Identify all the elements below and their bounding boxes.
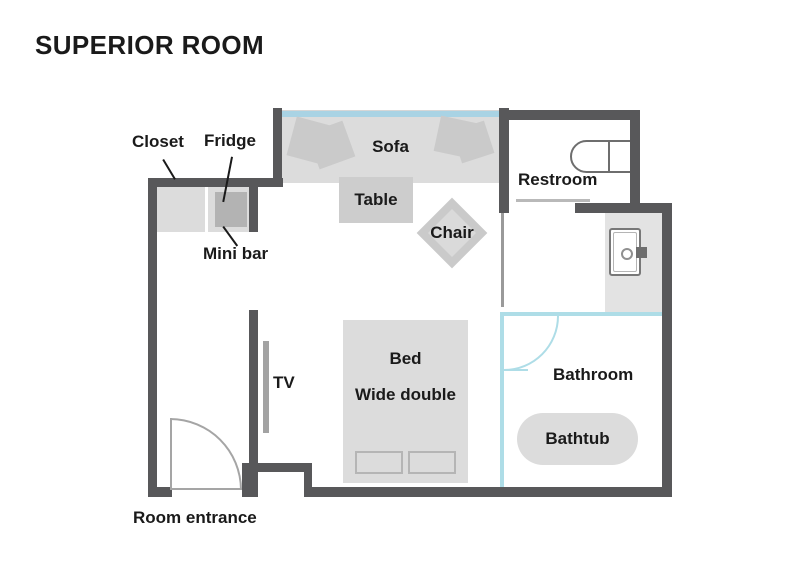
fridge	[215, 192, 247, 227]
tv-label: TV	[273, 374, 295, 393]
bed-type-label: Wide double	[343, 386, 468, 405]
toilet-top-view-icon	[570, 140, 632, 173]
sink-drain-icon	[621, 248, 633, 260]
wall-bottom-left	[148, 487, 172, 497]
bathroom-door-panel	[500, 369, 528, 371]
wall-notch-top	[256, 463, 307, 472]
faucet-icon	[636, 247, 647, 258]
bathroom-label: Bathroom	[553, 366, 633, 385]
table: Table	[339, 177, 413, 223]
pillow-outline-icon	[408, 451, 456, 474]
bed-label: Bed	[343, 350, 468, 369]
bathroom-door-swing-arc-icon	[504, 316, 559, 371]
wall-restroom-top	[499, 110, 640, 120]
wall-bottom	[310, 487, 672, 497]
closet	[157, 187, 205, 232]
corridor-partition-line	[501, 213, 504, 307]
wall-restroom-left	[499, 108, 509, 213]
chair-label: Chair	[412, 224, 492, 243]
wall-sofa-left	[273, 108, 282, 187]
table-label: Table	[354, 191, 397, 210]
wall-tv-bar-icon	[263, 341, 269, 433]
pillow-outline-icon	[355, 451, 403, 474]
page-title: SUPERIOR ROOM	[35, 30, 264, 61]
restroom-door-line	[516, 199, 590, 202]
wall-minibar-right	[249, 178, 258, 232]
wall-corridor-bottom	[575, 203, 672, 213]
toilet-tank-divider	[608, 142, 610, 171]
wall-right	[662, 203, 672, 497]
restroom-label: Restroom	[518, 171, 597, 190]
closet-label: Closet	[132, 133, 184, 152]
sofa-label: Sofa	[282, 138, 499, 157]
mini-bar-label: Mini bar	[203, 245, 268, 264]
wall-closet-top	[148, 178, 283, 187]
closet-leader-line	[162, 159, 176, 180]
entrance-door-swing-arc-icon	[170, 418, 242, 490]
floor-plan: SUPERIOR ROOM Sofa Table Chair Bed Wide …	[0, 0, 800, 570]
bathtub-label: Bathtub	[545, 430, 609, 449]
bed: Bed Wide double	[343, 320, 468, 483]
wall-left	[148, 178, 157, 497]
fridge-label: Fridge	[204, 132, 256, 151]
room-entrance-label: Room entrance	[133, 509, 257, 528]
wall-restroom-right	[630, 110, 640, 213]
bathtub: Bathtub	[517, 413, 638, 465]
